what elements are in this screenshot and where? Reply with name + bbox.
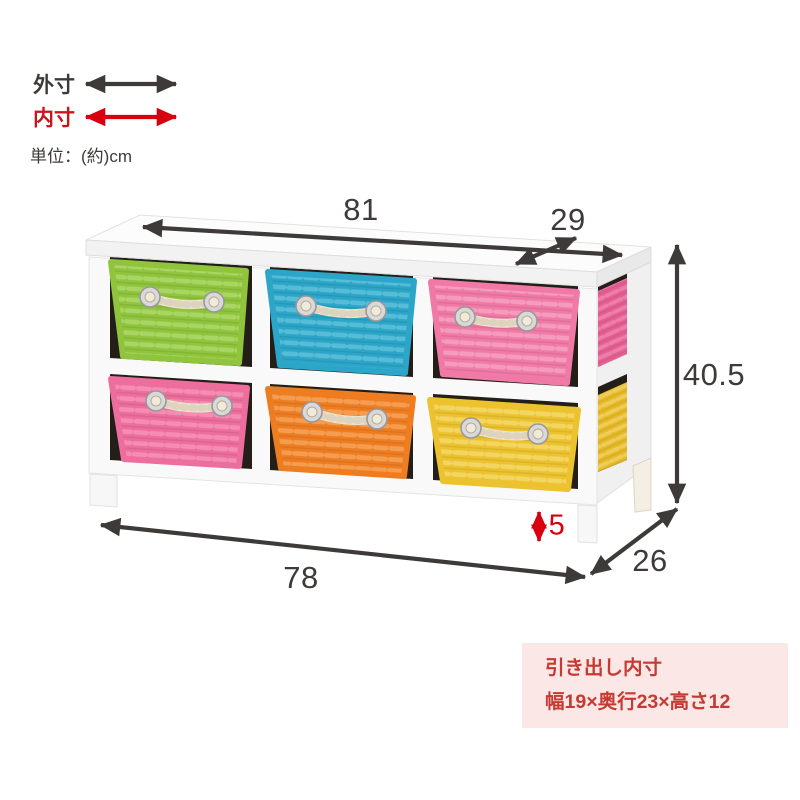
basket-blue bbox=[268, 272, 414, 373]
drawer-inner-dimensions-box: 引き出し内寸 幅19×奥行23×高さ12 bbox=[522, 643, 788, 728]
basket-green bbox=[111, 262, 246, 363]
side-basket-yellow bbox=[598, 382, 627, 472]
info-box-size-text: 幅19×奥行23×高さ12 bbox=[545, 686, 788, 720]
product-dimension-diagram: 外寸 内寸 単位：(約)cm 81 29 40.5 78 26 5 引き出し内寸… bbox=[0, 0, 800, 800]
leg-height-value: 5 bbox=[549, 510, 566, 543]
basket-orange bbox=[268, 389, 413, 476]
legend-outer-label: 外寸 bbox=[33, 69, 75, 99]
bottom-width-value: 78 bbox=[283, 560, 318, 596]
side-basket-pink bbox=[598, 278, 627, 367]
unit-label: 単位：(約)cm bbox=[30, 142, 132, 167]
info-box-title: 引き出し内寸 bbox=[545, 652, 788, 686]
legend-inner-label: 内寸 bbox=[33, 102, 75, 132]
front-left-leg bbox=[90, 474, 117, 507]
basket-yellow bbox=[430, 400, 578, 489]
bottom-depth-value: 26 bbox=[632, 543, 667, 579]
top-depth-value: 29 bbox=[550, 202, 585, 238]
bottom-width-arrow bbox=[101, 525, 585, 577]
height-value: 40.5 bbox=[683, 357, 745, 393]
rear-right-leg bbox=[633, 458, 651, 512]
basket-pink-bottom bbox=[111, 379, 247, 466]
chest-body bbox=[86, 215, 651, 543]
top-width-value: 81 bbox=[343, 192, 378, 228]
front-right-leg bbox=[578, 505, 597, 543]
basket-pink-top bbox=[431, 282, 577, 383]
